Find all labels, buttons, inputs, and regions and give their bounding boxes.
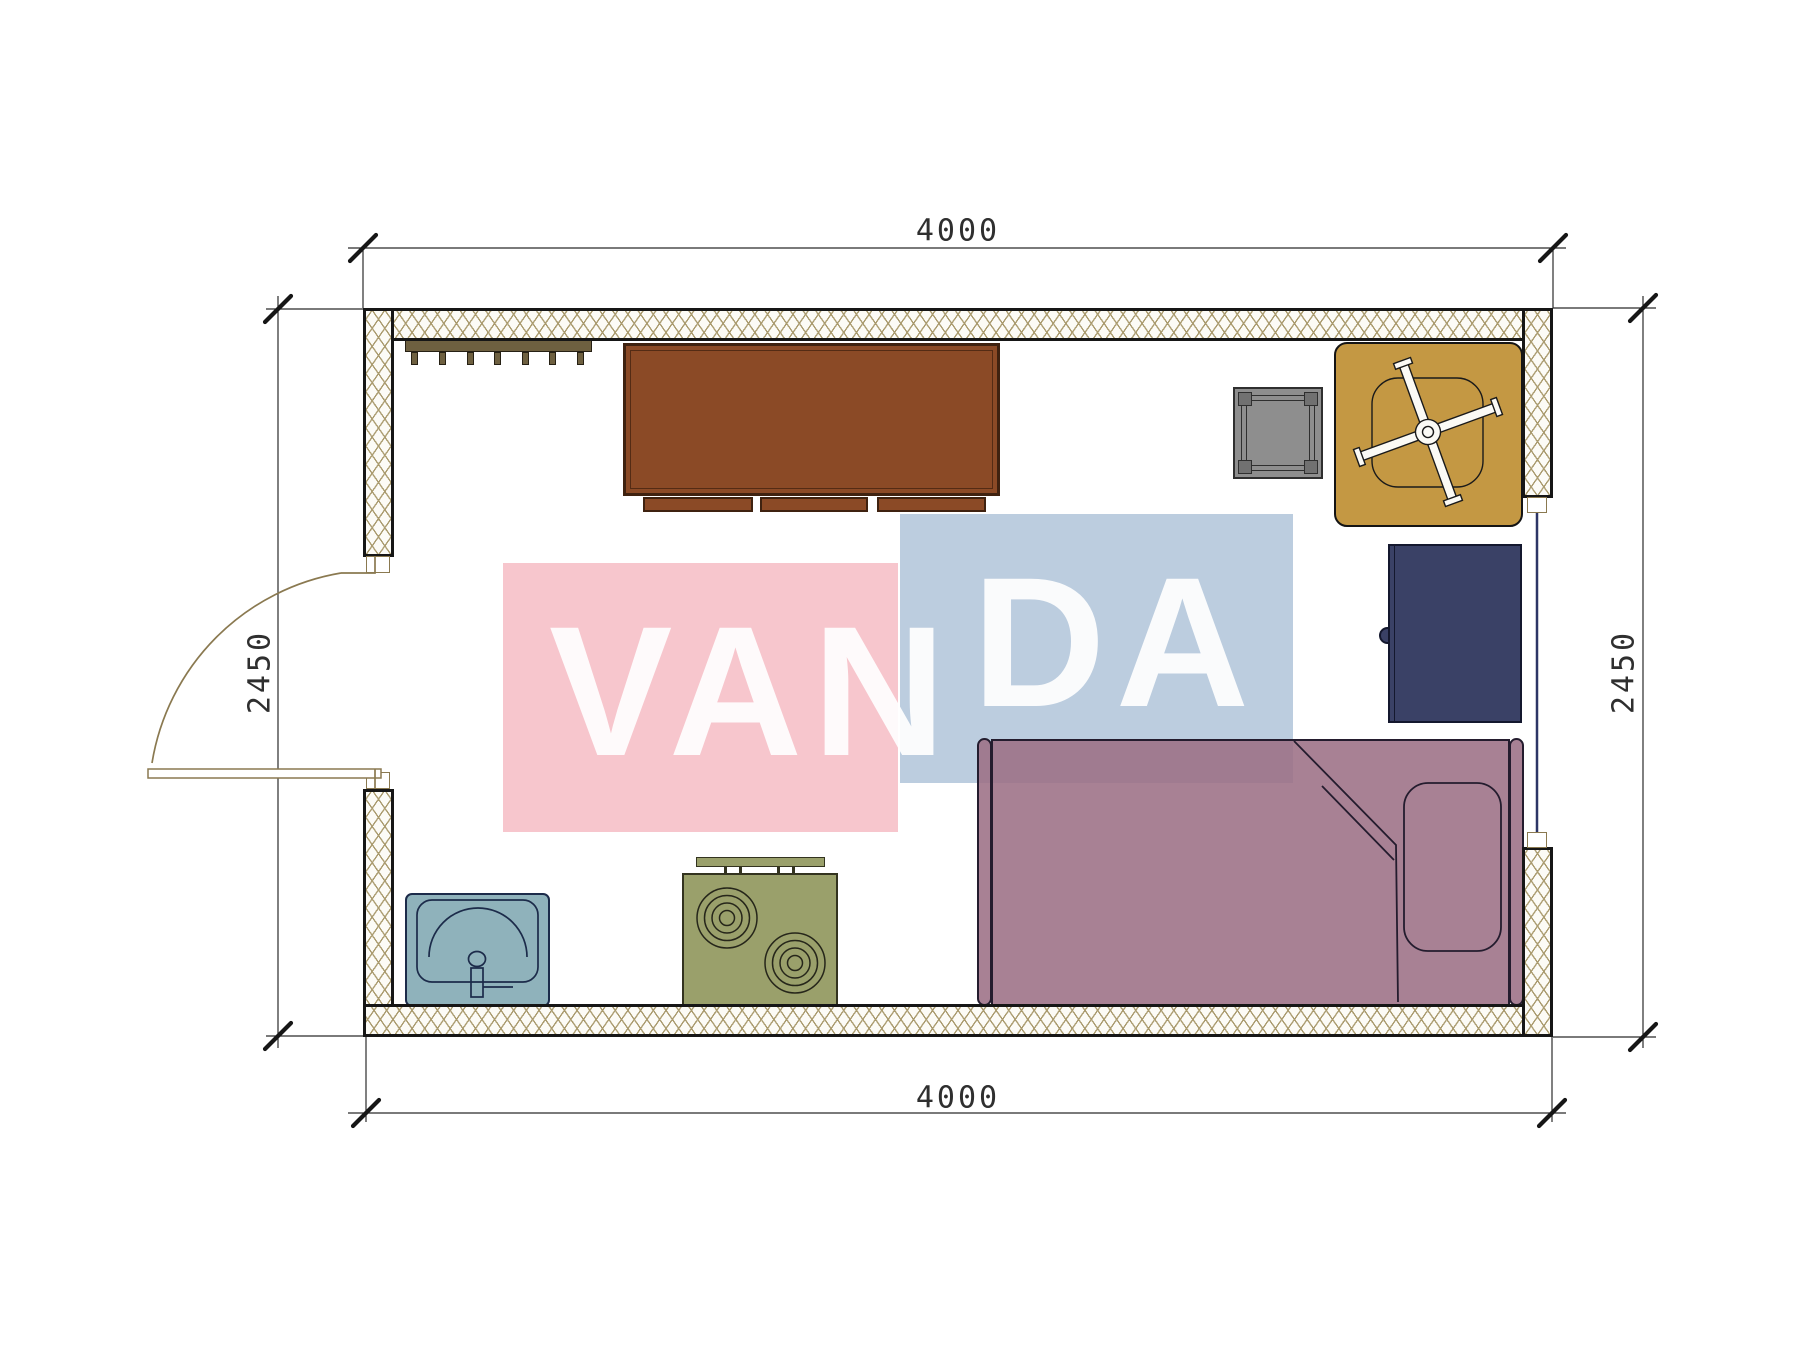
wall-top <box>363 308 1553 341</box>
wall-hook-peg <box>467 352 474 365</box>
wall-hook-peg <box>549 352 556 365</box>
wall-left-upper <box>363 308 394 557</box>
door-jamb-bottom <box>366 772 390 789</box>
wall-hook-peg <box>494 352 501 365</box>
stove-back-rail <box>696 857 825 867</box>
dim-bottom-label: 4000 <box>916 1081 1000 1116</box>
dim-right-label: 2450 <box>1607 630 1642 714</box>
bed-footboard <box>977 738 992 1006</box>
stool-leg <box>1238 460 1252 474</box>
window-jamb-bottom <box>1527 832 1547 848</box>
watermark-text-left: VAN <box>549 600 956 785</box>
cabinet-door-edge <box>1394 546 1397 721</box>
wall-right-upper <box>1522 308 1553 498</box>
stool-leg <box>1238 392 1252 406</box>
dim-left-label: 2450 <box>243 630 278 714</box>
wall-hook-peg <box>439 352 446 365</box>
desk-drawer <box>877 497 986 512</box>
dim-top-label: 4000 <box>916 214 1000 249</box>
bed <box>991 739 1510 1006</box>
wall-left-lower <box>363 789 394 1037</box>
wall-hook-peg <box>577 352 584 365</box>
wall-right-lower <box>1522 847 1553 1037</box>
wall-hook-peg <box>411 352 418 365</box>
desk-drawer <box>643 497 753 512</box>
desk <box>623 343 1000 496</box>
desk-drawer <box>760 497 868 512</box>
watermark-text-right: DA <box>972 551 1259 736</box>
stove <box>682 873 838 1007</box>
cabinet <box>1388 544 1522 723</box>
square-table <box>1334 342 1523 527</box>
stool-leg <box>1304 460 1318 474</box>
dimension-left <box>265 296 363 1049</box>
wall-hook-peg <box>522 352 529 365</box>
sink <box>405 893 550 1007</box>
desk-top-outline <box>630 350 993 489</box>
wall-hooks-rail <box>405 340 592 352</box>
floor-plan: VAN DA <box>0 0 1800 1350</box>
wall-bottom <box>363 1004 1553 1037</box>
stool-frame <box>1246 400 1310 466</box>
door-leaf <box>148 769 381 778</box>
window-jamb-top <box>1527 497 1547 513</box>
stool-leg <box>1304 392 1318 406</box>
stool <box>1233 387 1323 479</box>
door-jamb-top <box>366 556 390 573</box>
